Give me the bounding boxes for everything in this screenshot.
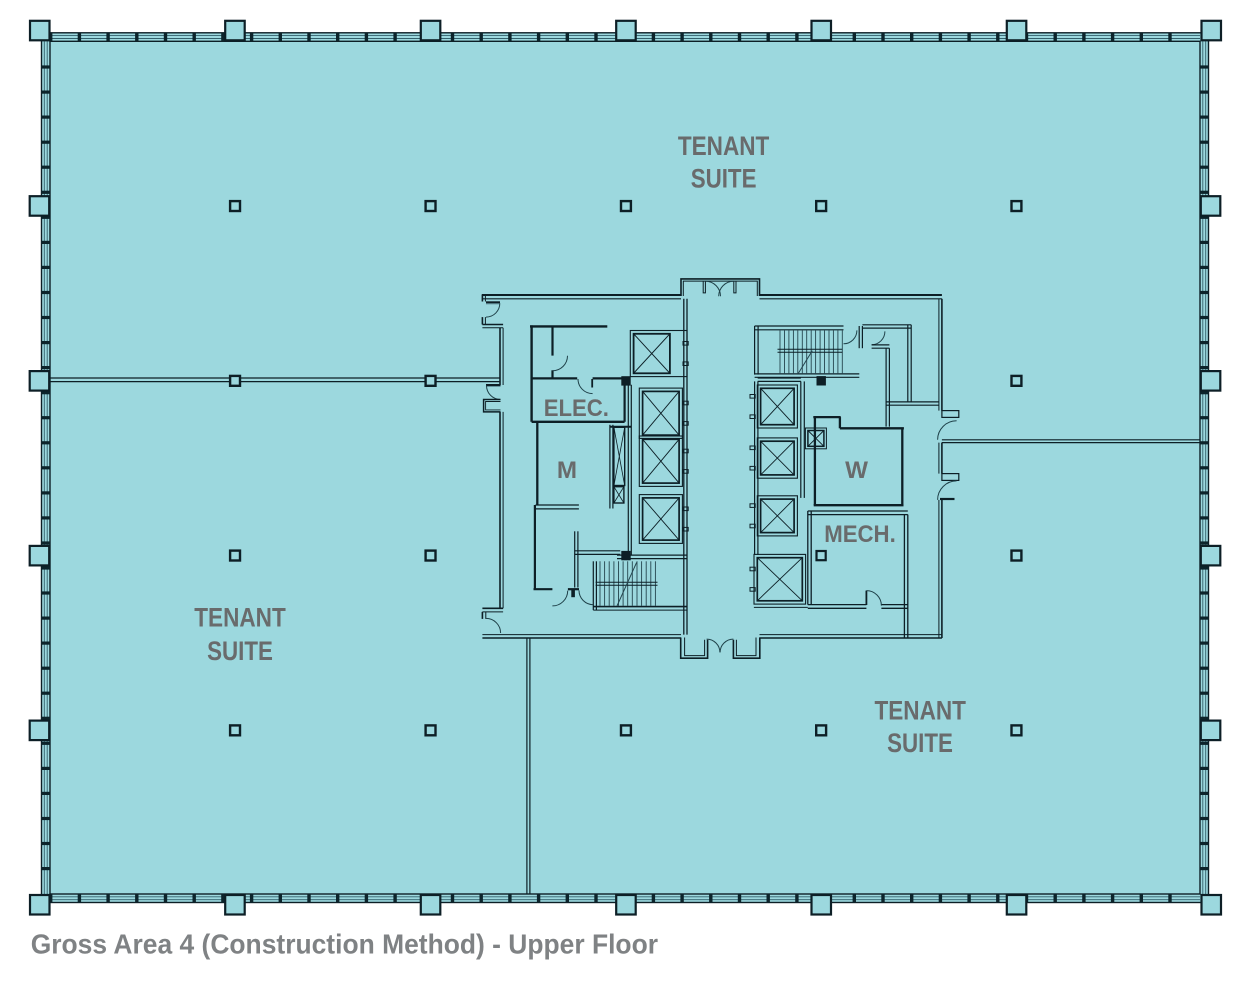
svg-text:SUITE: SUITE [691,163,757,193]
svg-text:Gross Area 4 (Construction Met: Gross Area 4 (Construction Method) - Upp… [31,928,659,959]
svg-text:W: W [845,457,868,484]
svg-text:ELEC.: ELEC. [544,395,609,422]
svg-text:MECH.: MECH. [824,521,896,548]
svg-text:SUITE: SUITE [887,728,953,758]
svg-text:TENANT: TENANT [194,602,286,632]
svg-text:TENANT: TENANT [874,695,966,725]
svg-text:TENANT: TENANT [678,131,770,161]
svg-text:SUITE: SUITE [207,636,273,666]
svg-text:M: M [557,457,577,484]
